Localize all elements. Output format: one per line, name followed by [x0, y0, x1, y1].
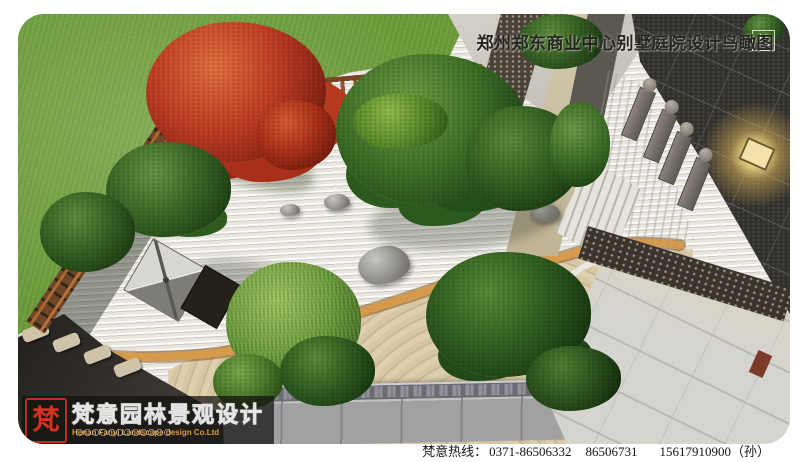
hotline-phone-3: 15617910900（孙）	[659, 444, 770, 459]
hotline-phone-2: 86506731	[585, 444, 637, 459]
red-seal-icon: 梵	[25, 398, 67, 443]
hotline-footer: 梵意热线：0371-865063328650673115617910900（孙）	[422, 441, 770, 460]
rendering-title: 郑州郑东商业中心别墅庭院设计鸟瞰图	[477, 29, 775, 54]
design-poster: 梵 郑州郑东商业中心别墅庭院设计鸟瞰图 梵 梵意园林景观设计 Henan Fan…	[0, 0, 800, 462]
hotline-label: 梵意热线：	[422, 444, 487, 459]
designer-logo: 梵 梵意园林景观设计 Henan Fanyi Landscape design …	[22, 396, 274, 444]
hotline-phone-1: 0371-86506332	[489, 444, 571, 459]
logo-decor-dots: 〇〇〇〇〇〇〇〇〇〇〇〇	[76, 428, 172, 438]
logo-brand-text: 梵意园林景观设计	[72, 397, 264, 429]
garden-rendering: 梵 郑州郑东商业中心别墅庭院设计鸟瞰图 梵 梵意园林景观设计 Henan Fan…	[18, 14, 790, 444]
